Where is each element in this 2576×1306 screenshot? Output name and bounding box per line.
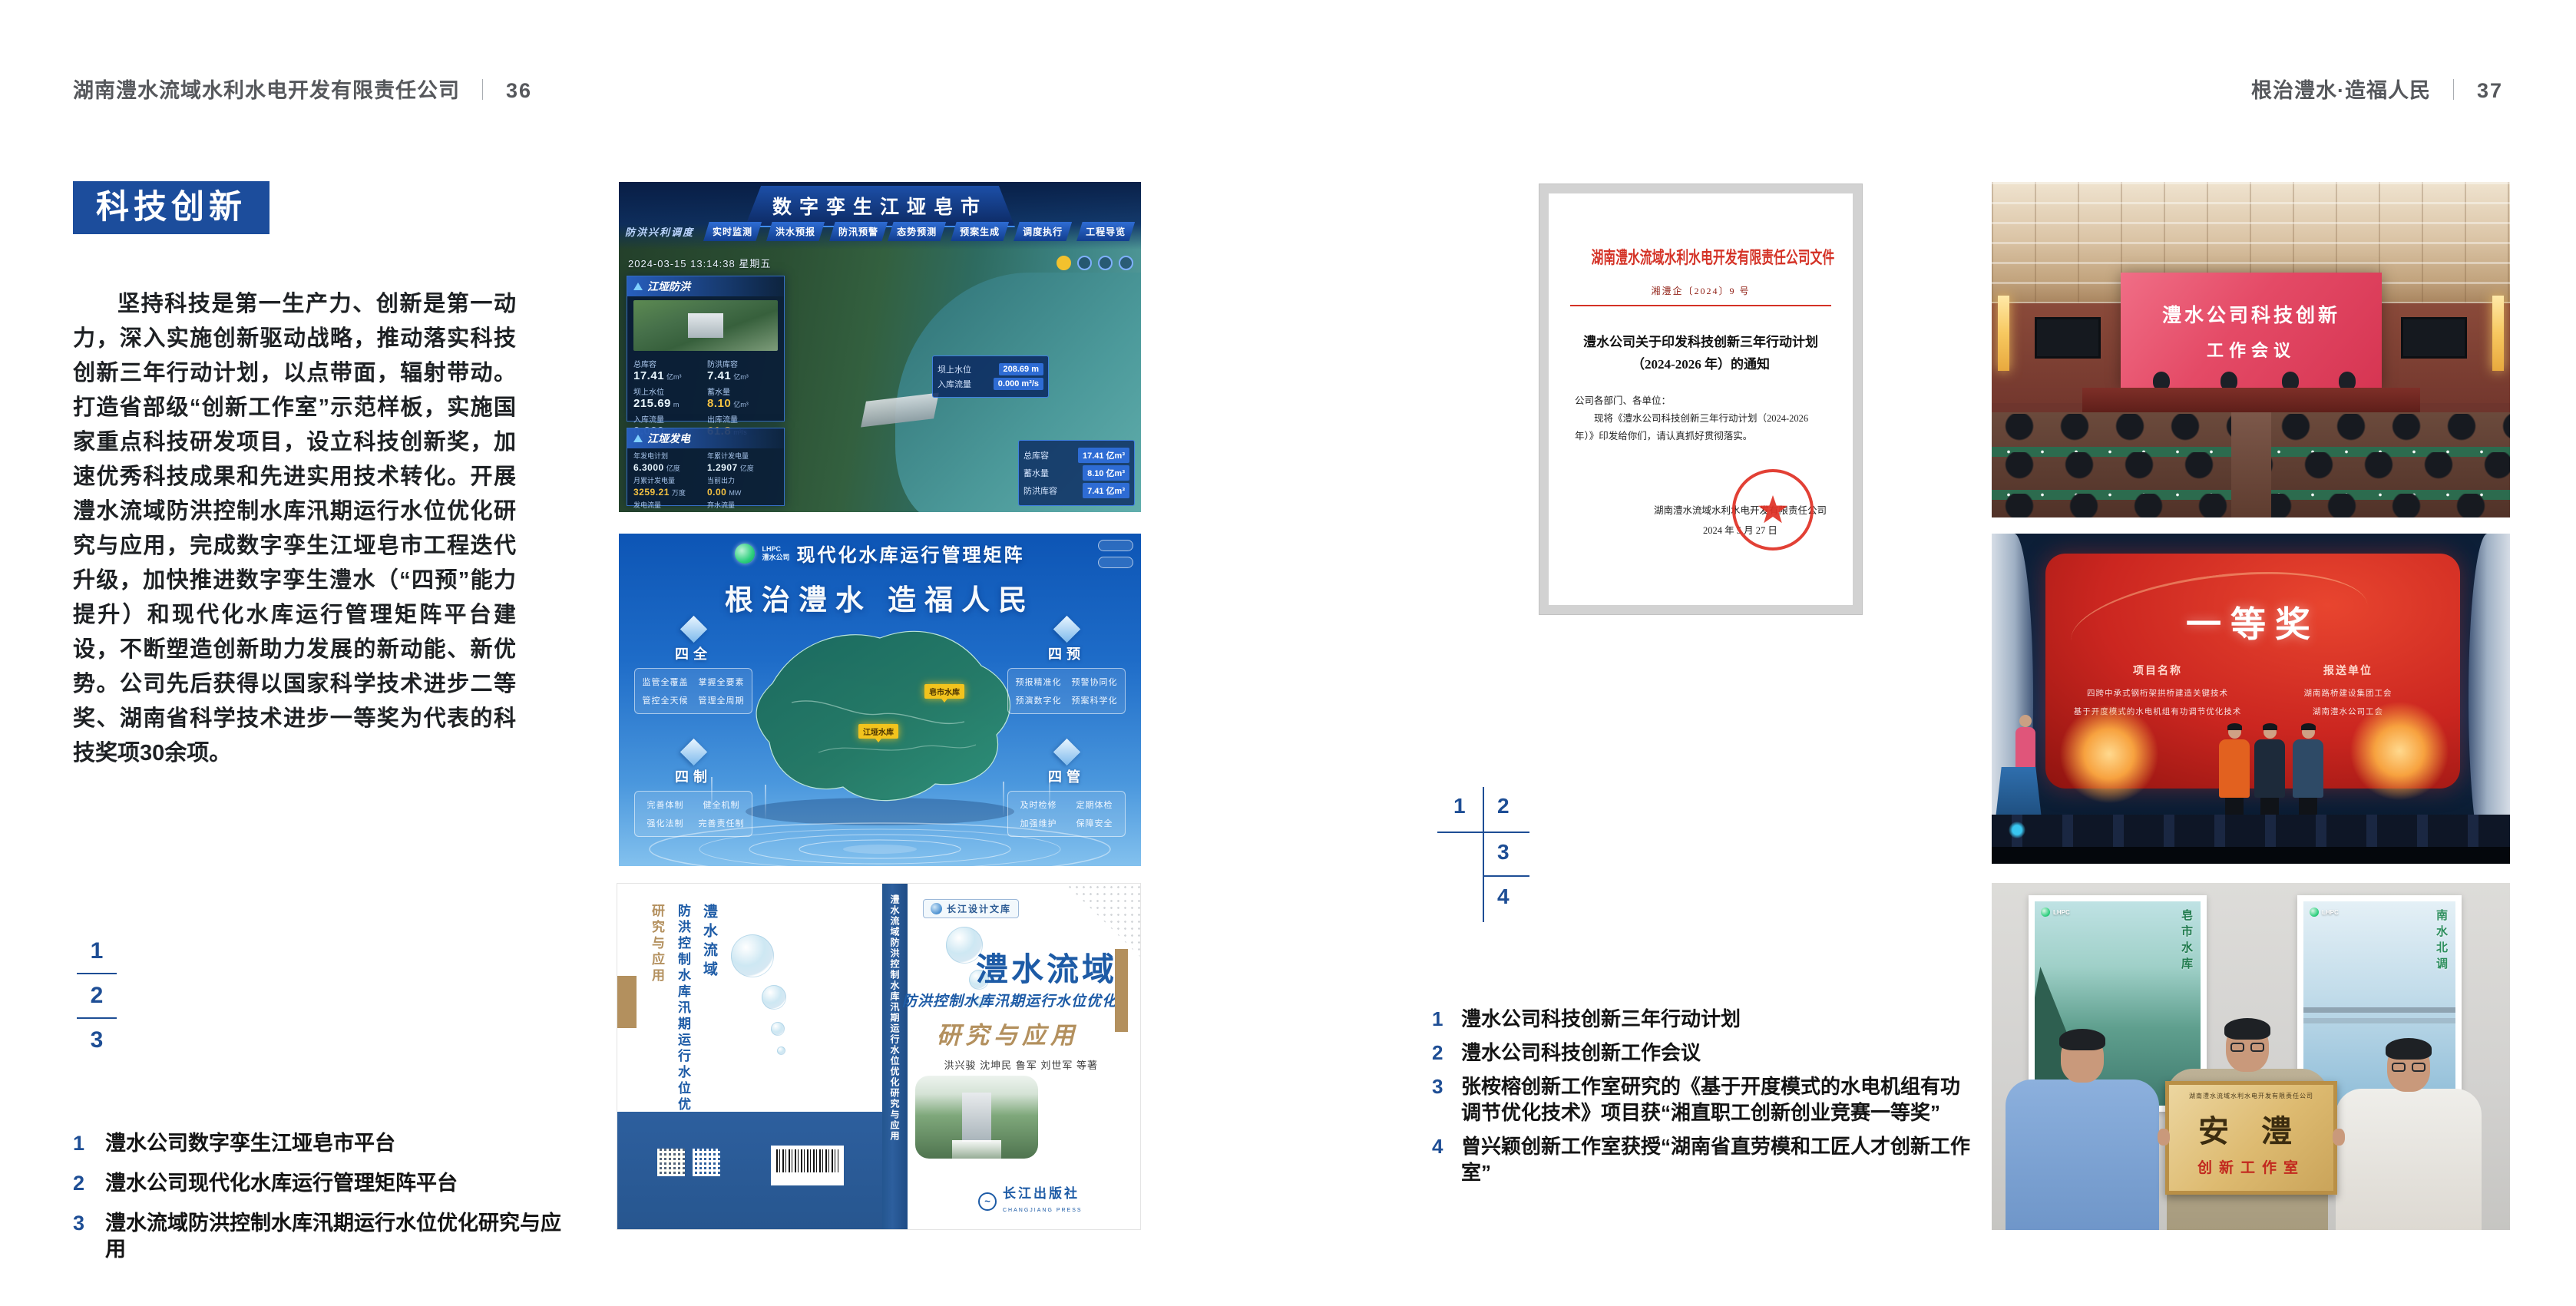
head-table: [2082, 388, 2420, 412]
mini-stat-row: 蓄水量8.10 亿m³: [1023, 465, 1129, 481]
panel-title: 江垭防洪: [647, 279, 690, 294]
red-rule: [1570, 305, 1832, 306]
matrix-header: LHPC澧水公司 现代化水库运行管理矩阵: [619, 540, 1141, 567]
brochure-spread: 湖南澧水流域水利水电开发有限责任公司｜36 根治澧水·造福人民｜37 科技创新 …: [0, 0, 2576, 1306]
tooltip-row: 坝上水位208.69 m: [937, 363, 1043, 375]
figure-marker: 3: [1497, 840, 1510, 865]
document-number: 湘澧企〔2024〕9 号: [1549, 284, 1853, 297]
awardee-blue: [2293, 726, 2323, 821]
stats-grid: 年发电计划6.3000亿度 年累计发电量1.2907亿度 月累计发电量3259.…: [627, 448, 784, 512]
panel-icon: [680, 739, 706, 765]
host-silhouette: [2019, 715, 2032, 727]
header-divider: ｜: [472, 79, 494, 102]
figure-marker: 1: [73, 940, 121, 963]
plaque-sub-text: 创新工作室: [2174, 1156, 2329, 1177]
mini-stat-row: 总库容17.41 亿m³: [1023, 448, 1129, 463]
screen-title-line1: 澧水公司科技创新: [2162, 300, 2340, 328]
stage-floor: [1992, 847, 2510, 864]
book-spine: 澧水流域防洪控制水库汛期运行水位优化研究与应用: [882, 884, 908, 1230]
glasses-icon: [2250, 1043, 2264, 1052]
matrix-title: 现代化水库运行管理矩阵: [797, 540, 1025, 567]
close-button: [1098, 540, 1133, 551]
page-slogan: 根治澧水·造福人民: [2251, 79, 2431, 102]
body-paragraph: 坚持科技是第一生产力、创新是第一动力，深入实施创新驱动战略，推动落实科技创新三年…: [73, 287, 516, 771]
bubble: [777, 1046, 785, 1055]
page-header-right: 根治澧水·造福人民｜37: [2251, 74, 2503, 104]
panel-header: 江垭发电: [627, 428, 784, 448]
caption-text: 曾兴颖创新工作室获授“湖南省直劳模和工匠人才创新工作室”: [1461, 1133, 1973, 1185]
stat-cell: 防洪库容7.41亿m³: [707, 358, 778, 383]
front-title-tail: 研究与应用: [937, 1016, 1079, 1050]
section-badge: 科技创新: [73, 181, 270, 234]
innovation-workshop-plaque: 湖南澧水流域水利水电开发有限责任公司 安 澧 创新工作室: [2165, 1081, 2337, 1195]
stage-lights-row: [1992, 815, 2510, 847]
presenter-suit: [2254, 726, 2285, 821]
photo-workshop-plaque: LHPC 皂市水库 LHPC 南水北调 湖南澧水流域水利水电开发有限责任公司 安…: [1992, 883, 2510, 1230]
caption-text: 澧水公司科技创新三年行动计划: [1461, 1006, 1741, 1032]
photo-innovation-meeting: 澧水公司科技创新 工作会议: [1992, 182, 2510, 517]
figure-marker-column-left: 1 2 3: [73, 940, 121, 1052]
caption-text: 澧水公司数字孪生江垭皂市平台: [105, 1130, 395, 1156]
qr-code: [693, 1149, 720, 1176]
back-cover-title: 澧水流域 防洪控制水库汛期运行水位优化 研究与应用: [643, 904, 722, 1129]
dashboard-timestamp: 2024-03-15 13:14:38 星期五: [628, 256, 771, 270]
marker-vline: [1483, 787, 1484, 922]
marker-rule: [77, 973, 117, 974]
hand: [2333, 1129, 2345, 1146]
tab-group-left: 防洪兴利调度 实时监测 洪水预报 防汛预警: [625, 222, 888, 241]
dashboard-icon-row: [1057, 256, 1133, 270]
spine-title: 澧水流域防洪控制水库汛期运行水位优化研究与应用: [888, 894, 901, 1142]
marker-hline: [1483, 875, 1529, 877]
caption-row: 3澧水流域防洪控制水库汛期运行水位优化研究与应用: [73, 1210, 580, 1262]
caption-list-left: 1澧水公司数字孪生江垭皂市平台 2澧水公司现代化水库运行管理矩阵平台 3澧水流域…: [73, 1130, 580, 1276]
back-cover-tan-bar: [617, 976, 637, 1028]
glow-orb: [2349, 701, 2449, 801]
photo-award-ceremony: 一等奖 项目名称 四跨中承式钢桁架拱桥建造关键技术 基于开度模式的水电机组有功调…: [1992, 534, 2510, 864]
poster-vertical-text: 南水北调: [2433, 909, 2449, 974]
light-pillar: [1003, 782, 1004, 817]
glow-orb: [2059, 704, 2159, 804]
lhpc-logo-icon: [2041, 908, 2050, 917]
stat-cell: 年发电计划6.3000亿度: [633, 451, 704, 474]
company-name: 湖南澧水流域水利水电开发有限责任公司: [73, 79, 460, 102]
stat-cell: 弃水流量0.00m³/s: [707, 500, 778, 512]
plaque-main-text: 安 澧: [2174, 1106, 2329, 1151]
glasses-icon: [2230, 1043, 2244, 1052]
matrix-panel-siyu: 四预 预报精准化 预警协同化 预演数字化 预案科学化: [1007, 620, 1126, 714]
front-title-main: 澧水流域: [976, 944, 1117, 990]
dam-thumbnail: [633, 300, 778, 351]
wall-lamp: [1998, 296, 2009, 371]
figure-digital-twin-dashboard: 数字孪生江垭皂市 防洪兴利调度 实时监测 洪水预报 防汛预警 态势预测 预案生成…: [619, 182, 1141, 512]
panel-flood-control: 江垭防洪 总库容17.41亿m³ 防洪库容7.41亿m³ 坝上水位215.69m…: [627, 276, 785, 422]
barcode: [771, 1146, 844, 1185]
caption-row: 3张桉榕创新工作室研究的《基于开度模式的水电机组有功调节优化技术》项目获“湘直职…: [1432, 1073, 1973, 1126]
caption-row: 2澧水公司科技创新工作会议: [1432, 1040, 1973, 1066]
tab-realtime-monitoring: 实时监测: [703, 222, 762, 241]
poster-vertical-text: 皂市水库: [2178, 909, 2194, 974]
official-seal: [1730, 467, 1816, 553]
module-label: 防洪兴利调度: [625, 224, 694, 239]
stat-cell: 当前出力0.00MW: [707, 475, 778, 499]
publisher-logo-icon: ~: [978, 1192, 997, 1211]
document-red-header: 湖南澧水流域水利水电开发有限责任公司文件: [1591, 244, 1810, 269]
caption-text: 澧水流域防洪控制水库汛期运行水位优化研究与应用: [105, 1210, 580, 1262]
front-cover-tan-bar: [1115, 949, 1128, 1032]
stat-cell: 月累计发电量3259.21万度: [633, 475, 704, 499]
marker-hline: [1437, 832, 1529, 833]
caption-number: 2: [1432, 1040, 1461, 1066]
tab-plan-generation: 预案生成: [951, 222, 1009, 241]
caption-text: 澧水公司科技创新工作会议: [1461, 1040, 1701, 1066]
caption-number: 1: [73, 1130, 105, 1156]
menu-button: [1098, 557, 1133, 568]
panel-title: 江垭发电: [647, 431, 690, 446]
lhpc-logo-icon: [735, 544, 755, 564]
marker-rule: [77, 1017, 117, 1019]
caption-number: 3: [73, 1210, 105, 1262]
caption-number: 4: [1432, 1133, 1461, 1185]
award-title: 一等奖: [2045, 597, 2460, 647]
light-pillar: [765, 785, 766, 820]
caption-list-right: 1澧水公司科技创新三年行动计划 2澧水公司科技创新工作会议 3张桉榕创新工作室研…: [1432, 1006, 1973, 1193]
mini-stat-row: 防洪库容7.41 亿m³: [1023, 483, 1129, 498]
caption-text: 澧水公司现代化水库运行管理矩阵平台: [105, 1170, 458, 1196]
back-cover-blue-band: [617, 1112, 908, 1230]
figure-official-document: 湖南澧水流域水利水电开发有限责任公司文件 湘澧企〔2024〕9 号 澧水公司关于…: [1539, 184, 1862, 614]
wall-tv: [2035, 317, 2101, 359]
caption-row: 1澧水公司数字孪生江垭皂市平台: [73, 1130, 580, 1156]
dashboard-title: 数字孪生江垭皂市: [745, 186, 1015, 227]
panel-icon: [1053, 739, 1080, 765]
document-title: 澧水公司关于印发科技创新三年行动计划 （2024-2026 年）的通知: [1549, 331, 1853, 375]
person-white-shirt: [2336, 1043, 2482, 1230]
tab-flood-warning: 防汛预警: [829, 222, 888, 241]
caption-number: 3: [1432, 1073, 1461, 1126]
camera-icon: [1077, 256, 1092, 270]
light-pillar: [711, 777, 713, 812]
panel-icon: [633, 283, 643, 290]
figure-matrix-platform: LHPC澧水公司 现代化水库运行管理矩阵 根治澧水 造福人民 皂市水库 江垭水库…: [619, 534, 1141, 866]
bubble: [731, 934, 774, 977]
page-header-left: 湖南澧水流域水利水电开发有限责任公司｜36: [73, 74, 532, 104]
figure-marker: 2: [1497, 794, 1510, 818]
alert-icon: [1057, 256, 1071, 270]
panel-header: 江垭防洪: [627, 276, 784, 296]
dam-photo: [915, 1076, 1038, 1159]
figure-marker: 4: [1497, 884, 1510, 909]
user-icon: [1119, 256, 1133, 270]
caption-text: 张桉榕创新工作室研究的《基于开度模式的水电机组有功调节优化技术》项目获“湘直职工…: [1461, 1073, 1973, 1126]
hologram-rings: [619, 782, 1141, 866]
wall-tv: [2401, 317, 2467, 359]
front-title-sub: 防洪控制水库汛期运行水位优化: [902, 990, 1117, 1010]
document-body: 公司各部门、各单位： 现将《澧水公司科技创新三年行动计划（2024-2026 年…: [1575, 392, 1827, 445]
stat-cell: 年累计发电量1.2907亿度: [707, 451, 778, 474]
screen-title-line2: 工作会议: [2207, 337, 2296, 362]
panel-power-generation: 江垭发电 年发电计划6.3000亿度 年累计发电量1.2907亿度 月累计发电量…: [627, 428, 785, 506]
panel-icon: [633, 435, 643, 442]
figure-marker: 2: [73, 984, 121, 1007]
tab-flood-forecast: 洪水预报: [766, 222, 825, 241]
light-pillar: [1049, 774, 1050, 809]
glasses-icon: [2392, 1063, 2406, 1072]
plaque-header: 湖南澧水流域水利水电开发有限责任公司: [2174, 1092, 2329, 1100]
figure-marker: 1: [1453, 794, 1466, 818]
stat-cell: 发电流量0.00m³/s: [633, 500, 704, 512]
tooltip-row: 入库流量0.000 m³/s: [937, 378, 1043, 390]
caption-row: 4曾兴颖创新工作室获授“湖南省直劳模和工匠人才创新工作室”: [1432, 1133, 1973, 1185]
locate-icon: [1098, 256, 1113, 270]
stat-cell: 蓄水量8.10亿m³: [707, 385, 778, 411]
series-badge: 长江设计文库: [923, 899, 1019, 918]
tab-group-right: 态势预测 预案生成 调度执行 工程导览: [888, 222, 1135, 241]
authors-line: 洪兴骏 沈坤民 鲁军 刘世军 等著: [944, 1057, 1098, 1072]
panel-icon: [680, 616, 706, 643]
caption-row: 2澧水公司现代化水库运行管理矩阵平台: [73, 1170, 580, 1196]
led-screen: 一等奖 项目名称 四跨中承式钢桁架拱桥建造关键技术 基于开度模式的水电机组有功调…: [2045, 554, 2460, 789]
host-silhouette: [2015, 727, 2035, 773]
caption-number: 1: [1432, 1006, 1461, 1032]
lhpc-logo-text: LHPC澧水公司: [762, 545, 789, 562]
map-marker-jiangya: 江垭水库: [858, 724, 898, 739]
publisher-mark: ~ 长江出版社 CHANGJIANG PRESS: [978, 1187, 1083, 1215]
tab-situation-forecast: 态势预测: [888, 222, 946, 241]
tab-dispatch-execution: 调度执行: [1014, 222, 1072, 241]
person-blue-polo: [2006, 1033, 2159, 1230]
map-marker-zaoshi: 皂市水库: [924, 684, 964, 699]
wall-lamp: [2492, 296, 2504, 371]
caption-row: 1澧水公司科技创新三年行动计划: [1432, 1006, 1973, 1032]
header-divider: ｜: [2443, 79, 2465, 102]
awardee-orange: [2219, 726, 2250, 821]
qr-code: [657, 1149, 685, 1176]
center-aisle: [2231, 412, 2271, 517]
glasses-icon: [2412, 1063, 2426, 1072]
bubble: [771, 1022, 785, 1036]
lhpc-logo-icon: [2310, 908, 2319, 917]
stat-cell: 总库容17.41亿m³: [633, 358, 704, 383]
panel-icon: [1053, 616, 1080, 643]
tab-project-tour: 工程导览: [1076, 222, 1135, 241]
mini-stats-panel: 总库容17.41 亿m³ 蓄水量8.10 亿m³ 防洪库容7.41 亿m³: [1018, 440, 1135, 506]
hand: [2158, 1129, 2170, 1146]
dashboard-tab-row: 防洪兴利调度 实时监测 洪水预报 防汛预警 态势预测 预案生成 调度执行 工程导…: [625, 222, 1135, 241]
page-number-left: 36: [506, 79, 532, 102]
bubble: [762, 985, 786, 1010]
globe-icon: [931, 903, 942, 914]
caption-number: 2: [73, 1170, 105, 1196]
stat-cell: 坝上水位215.69m: [633, 385, 704, 411]
map-tooltip: 坝上水位208.69 m 入库流量0.000 m³/s: [932, 355, 1049, 398]
matrix-panel-siquan: 四全 监管全覆盖 掌握全要素 管控全天候 管理全周期: [634, 620, 752, 714]
figure-marker: 3: [73, 1029, 121, 1052]
page-number-right: 37: [2477, 79, 2503, 102]
figure-book-cover: 澧水流域 防洪控制水库汛期运行水位优化 研究与应用 澧水流域防洪控制水库汛期运行…: [617, 883, 1141, 1230]
